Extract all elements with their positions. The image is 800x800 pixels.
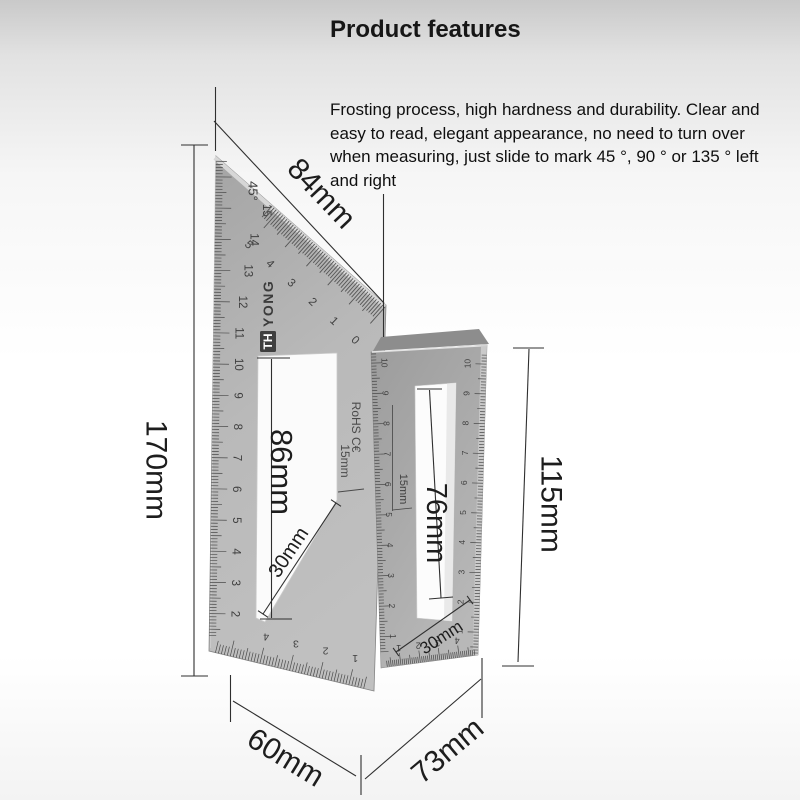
dimension-73mm-label: 73mm	[405, 711, 490, 790]
scale-number: 7	[460, 450, 470, 455]
product-diagram: 234567891011121314150123451234 45° TH YO…	[0, 0, 800, 800]
scale-number: 8	[231, 424, 243, 430]
scale-number: 7	[382, 452, 392, 457]
scale-number: 7	[231, 455, 243, 461]
scale-number: 2	[456, 599, 466, 604]
scale-number: 10	[462, 359, 472, 369]
scale-number: 5	[230, 517, 242, 523]
brand-prefix: TH	[261, 334, 275, 350]
scale-number: 2	[322, 645, 328, 657]
brand-suffix: YONG	[260, 280, 276, 327]
angle-label: 45°	[245, 181, 260, 201]
scale-number: 3	[229, 580, 241, 586]
scale-number: 1	[388, 634, 398, 639]
scale-number: 4	[385, 543, 395, 548]
product-features-page: Product features Frosting process, high …	[0, 0, 800, 800]
scale-number: 3	[293, 638, 299, 650]
scale-number: 6	[383, 482, 393, 487]
scale-number: 9	[380, 391, 390, 396]
bar-thickness-label: 15mm	[397, 474, 409, 505]
dimension-76mm-label: 76mm	[420, 483, 452, 564]
scale-number: 11	[232, 327, 244, 339]
scale-number: 3	[386, 573, 396, 578]
dimension-73mm: 73mm	[365, 658, 490, 790]
dimension-170mm-label: 170mm	[140, 420, 173, 520]
scale-number: 4	[457, 540, 467, 545]
scale-number: 3	[456, 569, 466, 574]
scale-number: 15	[260, 204, 272, 217]
scale-number: 10	[232, 358, 244, 371]
scale-number: 9	[232, 392, 244, 398]
scale-number: 8	[381, 421, 391, 426]
dimension-115mm: 115mm	[502, 348, 568, 666]
scale-number: 2	[228, 611, 240, 617]
scale-number: 12	[236, 296, 248, 309]
brand-logo: TH YONG	[260, 280, 276, 352]
scale-number: 6	[459, 480, 469, 485]
scale-number: 1	[352, 652, 358, 664]
scale-number: 5	[458, 510, 468, 515]
thickness-marking: 15mm	[338, 444, 352, 477]
dimension-60mm: 60mm	[231, 675, 362, 795]
dimension-170mm: 170mm	[140, 145, 209, 676]
dimension-86mm-label: 86mm	[264, 429, 299, 515]
triangle-ruler: 234567891011121314150123451234 45° TH YO…	[209, 156, 386, 691]
scale-number: 8	[461, 421, 471, 426]
scale-number: 10	[379, 358, 389, 368]
scale-number: 5	[384, 512, 394, 517]
scale-number: 4	[263, 630, 269, 642]
scale-number: 9	[462, 391, 472, 396]
scale-number: 6	[230, 486, 242, 492]
scale-number: 2	[387, 603, 397, 608]
dimension-115mm-label: 115mm	[535, 455, 568, 553]
scale-number: 13	[241, 264, 253, 277]
scale-number: 4	[229, 548, 241, 555]
